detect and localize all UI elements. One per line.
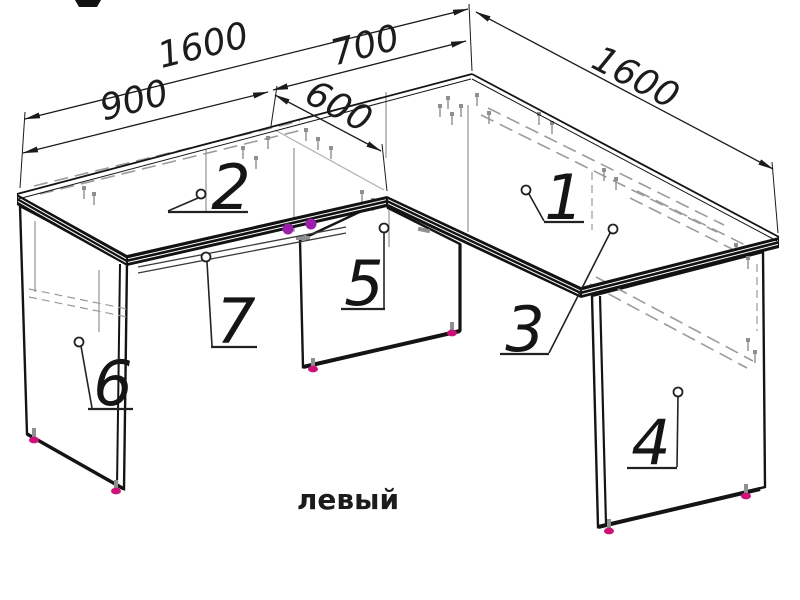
- callout-target-marker: [197, 190, 206, 199]
- callout-target-marker: [522, 186, 531, 195]
- callout-target-marker: [202, 253, 211, 262]
- foot-glide: [741, 493, 751, 500]
- callout-target-marker: [609, 225, 618, 234]
- cam-lock-dot: [306, 219, 317, 230]
- callout-target-marker: [674, 388, 683, 397]
- part-callout-7: 7: [202, 253, 258, 359]
- foot-glide: [29, 437, 39, 444]
- part-number-3: 3: [505, 293, 544, 366]
- dimension-label-top-overall: 1600: [154, 15, 253, 77]
- dimension-label-top-straight: 900: [96, 72, 173, 129]
- cam-lock-dot: [283, 224, 294, 235]
- crop-artifact-mark: [75, 0, 101, 7]
- part-number-7: 7: [216, 285, 255, 358]
- part-number-5: 5: [344, 247, 383, 320]
- part-number-4: 4: [631, 406, 670, 479]
- foot-glide: [604, 528, 614, 535]
- foot-glide: [308, 366, 318, 373]
- corner-desk-assembly-drawing: 1600 900 700 600 1600 1 2 3 4 5: [0, 0, 800, 600]
- part-number-6: 6: [93, 347, 132, 420]
- part-number-2: 2: [211, 151, 250, 224]
- orientation-caption: левый: [297, 483, 399, 516]
- part-number-1: 1: [544, 161, 583, 234]
- dimension-label-top-return: 700: [327, 17, 404, 74]
- dimension-label-right-side: 1600: [585, 38, 685, 117]
- callout-target-marker: [75, 338, 84, 347]
- foot-glide: [447, 330, 457, 337]
- assembly-drawing-page: 1600 900 700 600 1600 1 2 3 4 5: [0, 0, 800, 600]
- foot-glide: [111, 488, 121, 495]
- callout-target-marker: [380, 224, 389, 233]
